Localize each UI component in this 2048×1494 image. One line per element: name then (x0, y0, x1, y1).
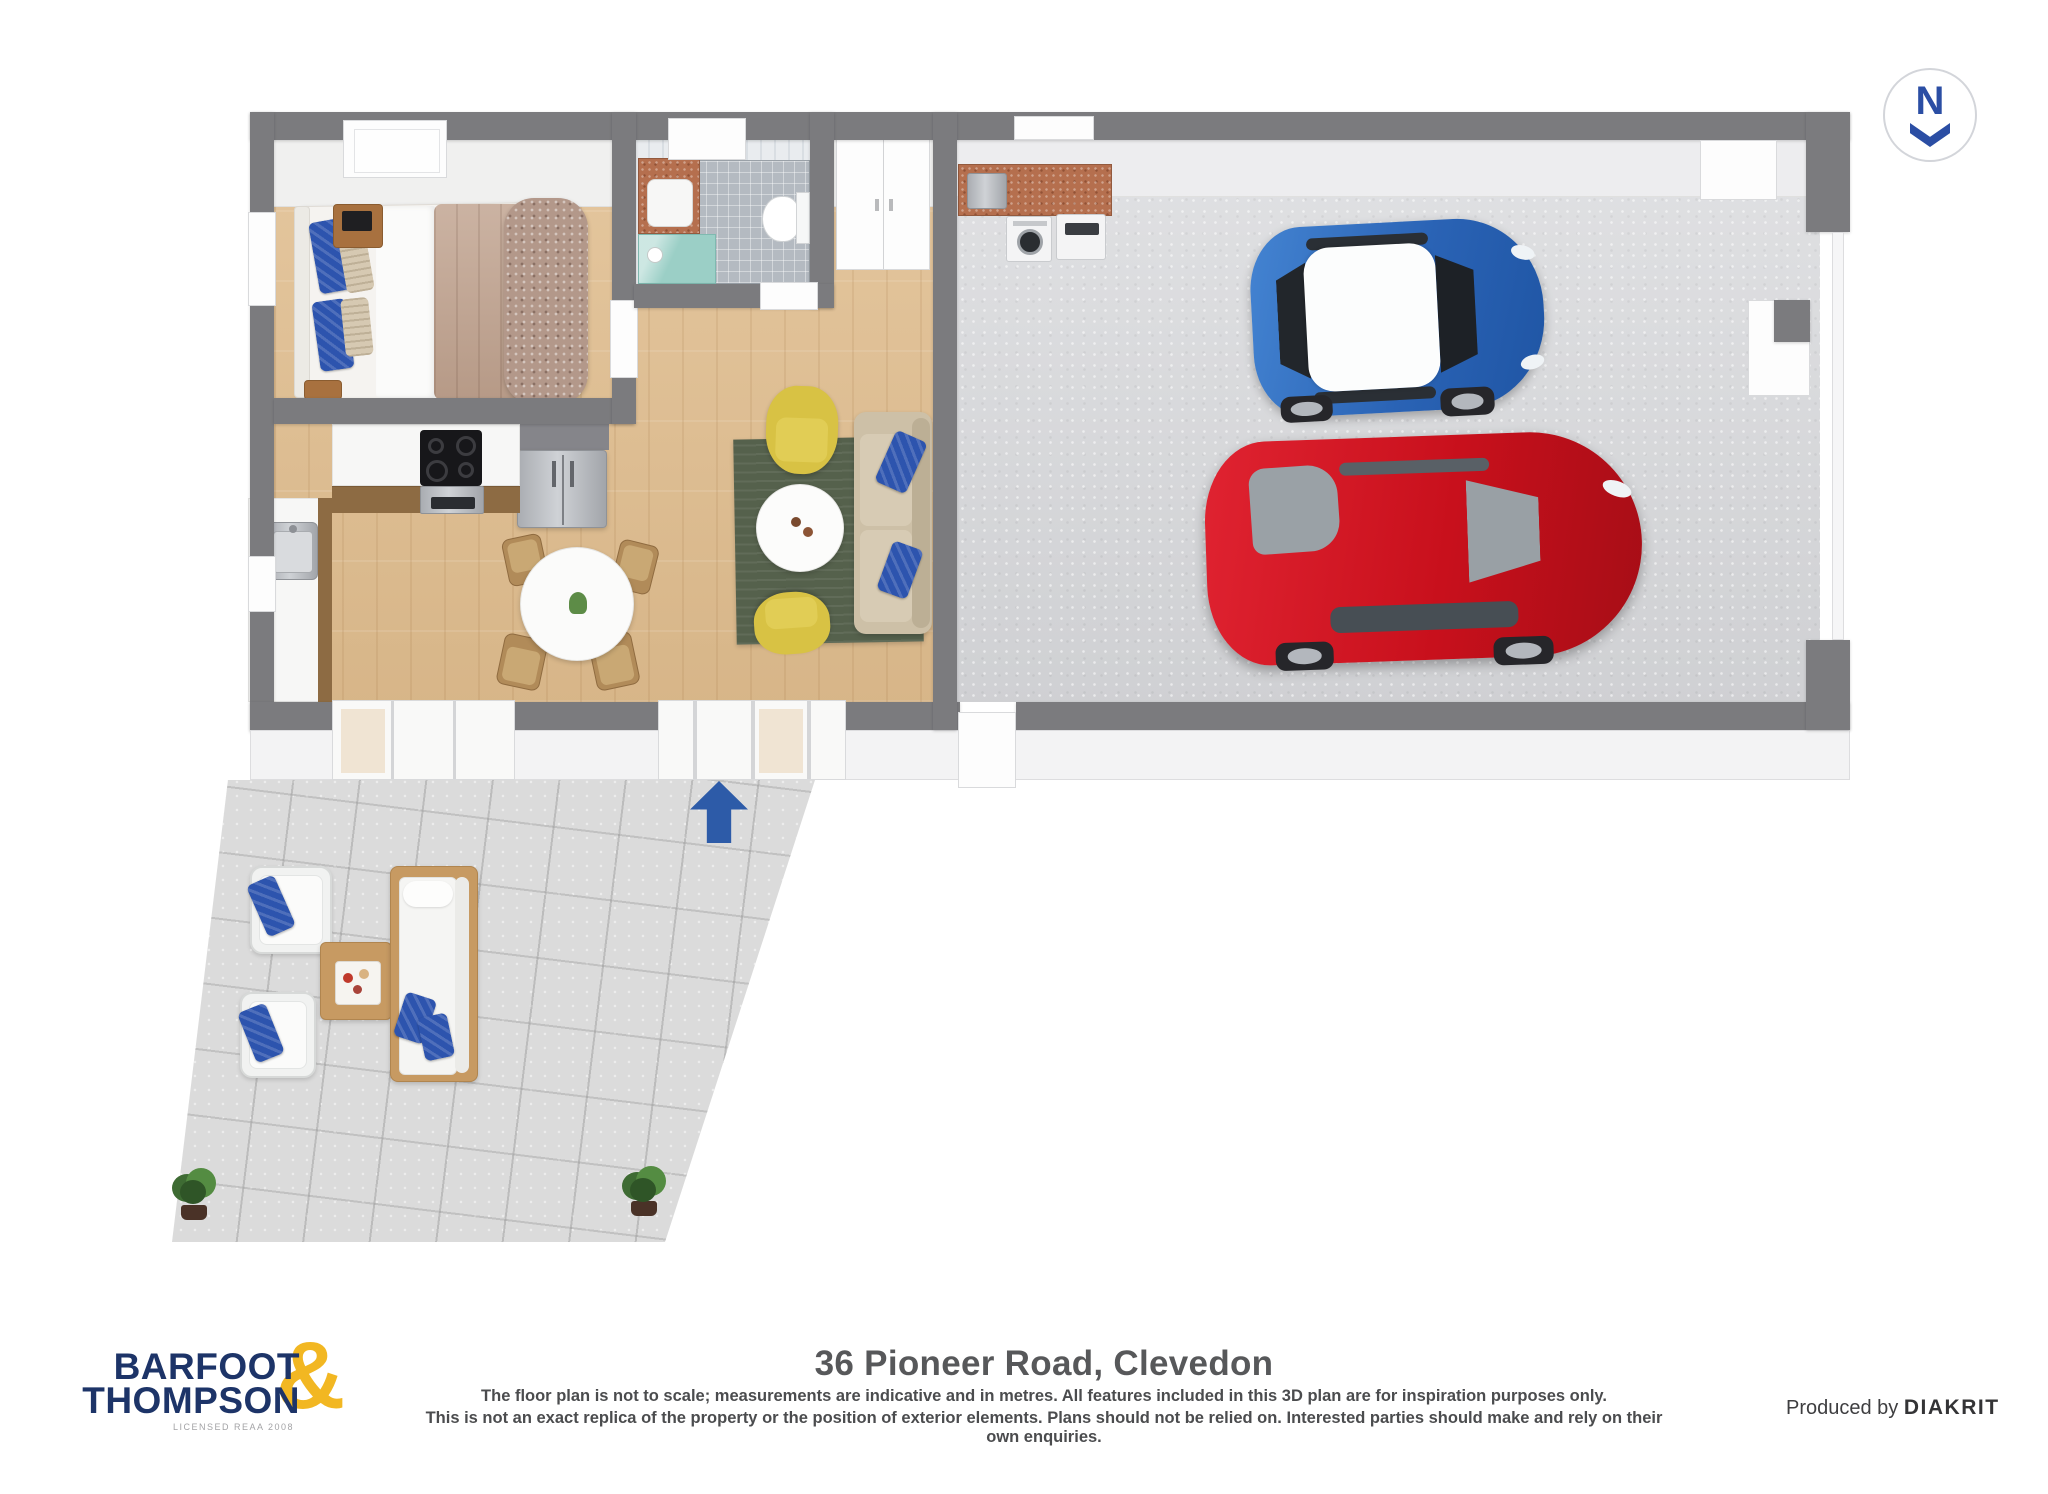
bathroom-vanity (638, 158, 700, 234)
cooktop (420, 430, 482, 486)
patio-coffee-table (320, 942, 392, 1020)
coffee-cup (791, 517, 801, 527)
toilet-cistern (796, 192, 810, 244)
patio-sofa-bolster (403, 881, 453, 907)
burner-icon (458, 462, 474, 478)
patio-sofa-backrest (455, 877, 469, 1073)
washing-machine (1006, 216, 1052, 262)
tray-cup (353, 985, 362, 994)
garage-door-opening-edge (1832, 232, 1844, 640)
house-garage-divider-wall (933, 112, 957, 730)
patio-sliding-door (332, 700, 515, 780)
garage-wall-stub-cap (1774, 300, 1810, 342)
dryer-panel (1065, 223, 1099, 235)
nightstand (333, 204, 383, 248)
blue-car-white-roof (1302, 242, 1441, 393)
table-plant-icon (569, 592, 587, 614)
produced-by: Produced by DIAKRIT (1786, 1396, 2000, 1420)
toilet (762, 196, 800, 242)
disclaimer-line-1: The floor plan is not to scale; measurem… (424, 1387, 1664, 1406)
dryer (1056, 214, 1106, 260)
door-frame-line (807, 701, 811, 779)
garage-window (1700, 140, 1777, 200)
bedroom-south-wall (274, 398, 634, 424)
logo-line2: THOMPSON (82, 1382, 300, 1419)
patio-tray (335, 961, 381, 1005)
patio-sofa (390, 866, 478, 1082)
laundry-counter (958, 164, 1112, 216)
tray-cup (343, 973, 353, 983)
clock-radio (342, 211, 372, 231)
bed-shaggy-throw (504, 198, 588, 404)
blue-car (1247, 214, 1549, 419)
laundry-window (1014, 116, 1094, 140)
door-frame-line (391, 701, 394, 779)
bedroom-west-window (248, 212, 276, 306)
tray-cup (359, 969, 369, 979)
door-frame-line (751, 701, 755, 779)
kitchen-west-window (248, 556, 276, 612)
sink-basin (273, 531, 313, 573)
door-frame-line (693, 701, 697, 779)
faucet-icon (289, 525, 297, 533)
bed-headboard (294, 206, 310, 398)
producer-name: DIAKRIT (1904, 1396, 2000, 1419)
car-wheel-icon (1493, 636, 1554, 666)
kitchen-tall-cabinet (517, 424, 609, 450)
left-exterior-wall (250, 112, 274, 732)
logo-license: LICENSED REAA 2008 (173, 1422, 294, 1432)
shower (638, 234, 716, 284)
door-glass (759, 709, 803, 773)
oven-window (431, 497, 475, 509)
wardrobe-handle-icon (875, 199, 879, 211)
wardrobe-handle-icon (889, 199, 893, 211)
bottom-wall-segment (250, 702, 332, 730)
bedroom-stool (304, 380, 342, 400)
car-rear-window (1248, 464, 1342, 556)
living-sofa (854, 412, 932, 634)
car-wheel-icon (1440, 386, 1495, 417)
door-glass (341, 709, 385, 773)
bathroom-east-wall (810, 112, 834, 308)
bed-sheet (376, 206, 436, 398)
bathroom-window (668, 118, 746, 160)
washer-panel (1013, 221, 1047, 226)
compass-n-label: N (1885, 81, 1975, 121)
patio-armchair-1 (250, 866, 332, 954)
bottom-wall-segment (1016, 702, 1850, 730)
bedroom-skylight-window (343, 120, 447, 178)
fridge (517, 450, 607, 528)
produced-by-label: Produced by (1786, 1397, 1898, 1419)
bathroom-sink (647, 179, 693, 227)
bedroom-door (610, 300, 638, 378)
kitchen-counter-left-edge (318, 498, 332, 702)
compass-arrow-icon (1910, 123, 1950, 147)
yellow-armchair (764, 385, 839, 475)
garage-east-wall-bottom (1806, 640, 1850, 730)
burner-icon (456, 436, 476, 456)
potted-plant-icon (170, 1168, 218, 1220)
potted-plant-icon (620, 1166, 668, 1216)
wardrobe (836, 136, 930, 270)
burner-icon (426, 460, 448, 482)
floorplan-page: N & BARFOOT THOMPSON LICENSED REAA 2008 … (0, 0, 2048, 1494)
entry-sliding-door (658, 700, 846, 780)
garage-east-wall-top (1806, 112, 1850, 232)
patio-armchair-2 (240, 992, 316, 1078)
burner-icon (428, 438, 444, 454)
window-pane (354, 129, 440, 173)
garage-side-door (958, 712, 1016, 788)
coffee-cup (803, 527, 813, 537)
bed-pillow-striped (340, 297, 374, 358)
fridge-handle-icon (552, 461, 556, 487)
laundry-sink (967, 173, 1007, 209)
washer-door-icon (1017, 229, 1043, 255)
fridge-handle-icon (570, 461, 574, 487)
property-address-title: 36 Pioneer Road, Clevedon (424, 1344, 1664, 1384)
footer-caption: 36 Pioneer Road, Clevedon The floor plan… (424, 1344, 1664, 1447)
car-wheel-icon (1275, 641, 1334, 671)
compass-north-indicator: N (1883, 68, 1977, 162)
oven (420, 486, 484, 514)
shower-head-icon (647, 247, 663, 263)
coffee-table (756, 484, 844, 572)
bottom-wall-segment (515, 702, 658, 730)
fridge-door-divider (562, 455, 564, 525)
dining-table (520, 547, 634, 661)
barfoot-thompson-logo: & BARFOOT THOMPSON LICENSED REAA 2008 (70, 1342, 300, 1437)
wardrobe-door-divider (883, 137, 884, 269)
disclaimer-line-2: This is not an exact replica of the prop… (424, 1409, 1664, 1447)
door-frame-line (453, 701, 456, 779)
car-wheel-icon (1280, 395, 1333, 424)
red-car (1202, 428, 1646, 667)
bathroom-door (760, 282, 818, 310)
